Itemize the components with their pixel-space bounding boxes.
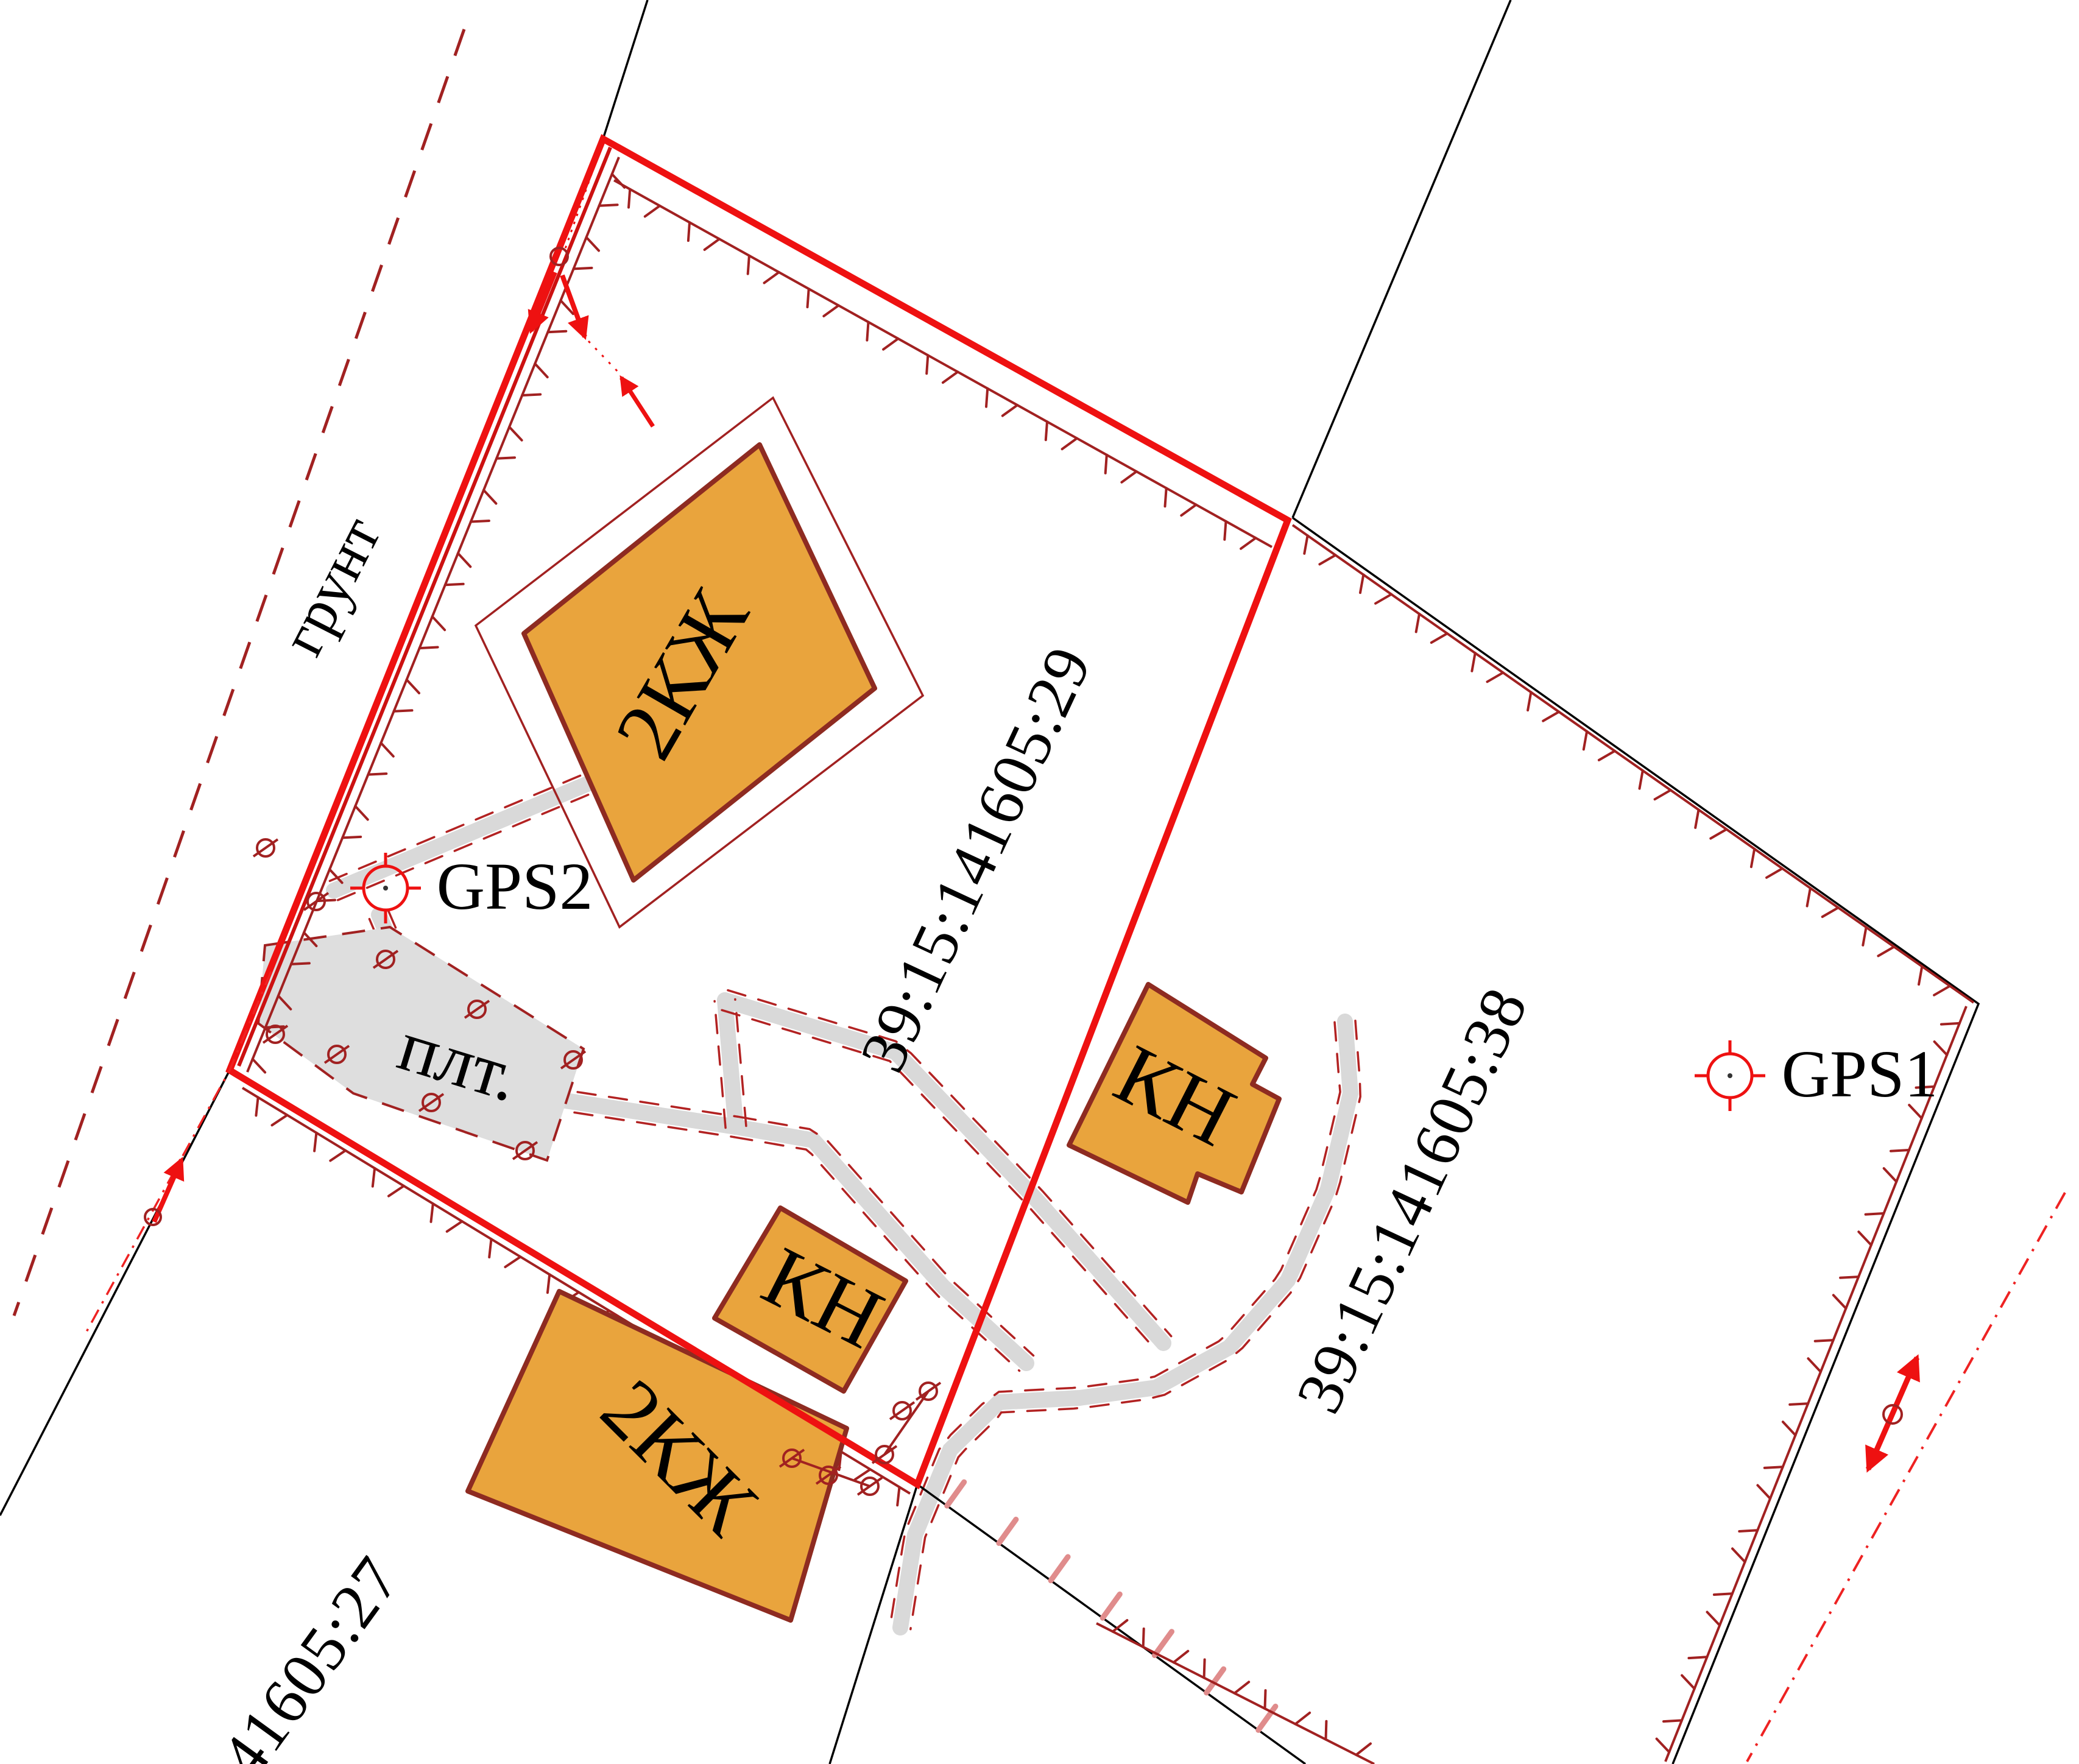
gps1-label: GPS1 — [1782, 1037, 1938, 1111]
gps2-label: GPS2 — [437, 849, 593, 923]
footpath-up — [725, 1000, 736, 1127]
cadastral-map: грунт плт. GPS2 GPS1 2КЖ КН КН 2КЖ 39:15… — [0, 0, 2079, 1764]
